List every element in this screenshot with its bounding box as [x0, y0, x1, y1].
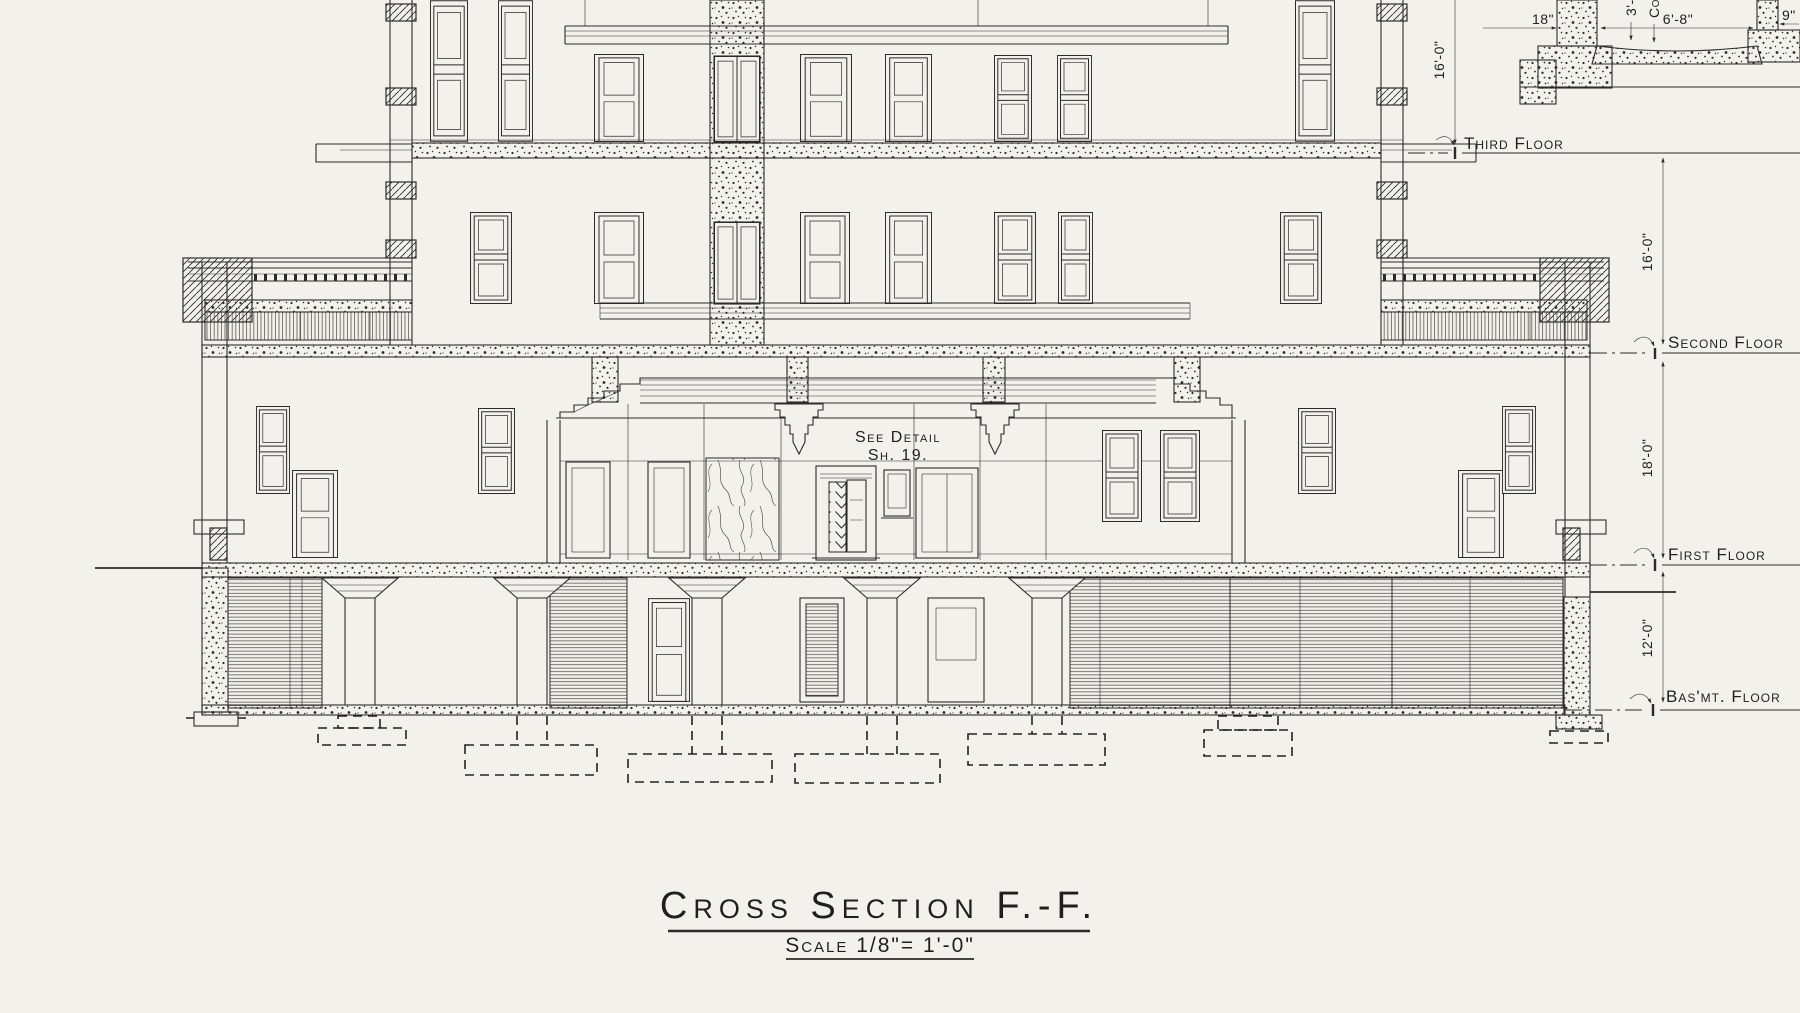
blueprint-sheet: Third Floor Second Floor First Floor Bas… [0, 0, 1800, 1013]
transom-window [881, 470, 913, 518]
title-block: Cross Section F.-F. Scale 1/8"= 1'-0" [660, 885, 1098, 959]
pit-note-partial: Con [1646, 0, 1662, 18]
svg-text:16'-0": 16'-0" [1431, 41, 1447, 80]
svg-text:18'-0": 18'-0" [1639, 439, 1655, 478]
floor-label-third: Third Floor [1464, 134, 1564, 153]
wide-opening [916, 468, 978, 558]
marble-panel [706, 458, 779, 560]
cross-section-drawing: Third Floor Second Floor First Floor Bas… [0, 0, 1800, 1013]
building-section [95, 0, 1676, 783]
hall-cornice [556, 378, 1236, 418]
level-second-floor: Second Floor [1590, 333, 1800, 359]
basement-floor-slab [194, 705, 1602, 729]
pit-detail: 18" 6'-8" 9" 3'- Con [1483, 0, 1800, 104]
dim-second-to-first: 18'-0" [1639, 362, 1663, 558]
floor-label-second: Second Floor [1668, 333, 1784, 352]
tall-opening [566, 462, 610, 558]
footings [186, 716, 1608, 783]
attic-cornice-band [565, 26, 1228, 44]
level-basement-floor: Bas'mt. Floor [1565, 687, 1800, 716]
see-detail-line1: See Detail [855, 429, 941, 446]
console-ornament [971, 404, 1019, 454]
pit-dim-width: 6'-8" [1663, 11, 1693, 27]
console-ornament [775, 404, 823, 454]
basement-opening [928, 598, 984, 702]
drawing-scale: Scale 1/8"= 1'-0" [785, 934, 975, 957]
pit-dim-depth-partial: 3'- [1623, 0, 1639, 16]
third-story-openings [471, 213, 1322, 305]
lined-door [800, 598, 844, 702]
dim-third-to-second: 16'-0" [1639, 158, 1663, 344]
see-detail-line2: Sh. 19. [868, 447, 928, 464]
footing-right-wall [1556, 715, 1602, 729]
level-first-floor: First Floor [1590, 545, 1800, 571]
dim-attic-to-third: 16'-0" [1431, 0, 1455, 144]
attic-openings [430, 1, 1334, 142]
foundation-wall-left [202, 568, 228, 712]
pit-dim-right-wall: 9" [1782, 7, 1796, 23]
level-third-floor: Third Floor [1408, 134, 1800, 159]
pit-dim-left-wall: 18" [1532, 11, 1554, 27]
floor-label-basement: Bas'mt. Floor [1666, 687, 1781, 706]
third-story-band [600, 303, 1190, 319]
second-floor-slab [202, 345, 1590, 357]
see-detail-note: See Detail Sh. 19. [855, 429, 941, 464]
tall-opening [648, 462, 690, 558]
third-floor-slab [316, 140, 1476, 162]
basement-story [202, 568, 1590, 715]
main-door [812, 466, 880, 560]
foundation-wall-right [1564, 597, 1590, 715]
svg-text:16'-0": 16'-0" [1639, 233, 1655, 272]
pit-floor-slab [1592, 46, 1762, 64]
drawing-title: Cross Section F.-F. [660, 885, 1098, 927]
svg-text:12'-0": 12'-0" [1639, 619, 1655, 658]
floor-label-first: First Floor [1668, 545, 1766, 564]
